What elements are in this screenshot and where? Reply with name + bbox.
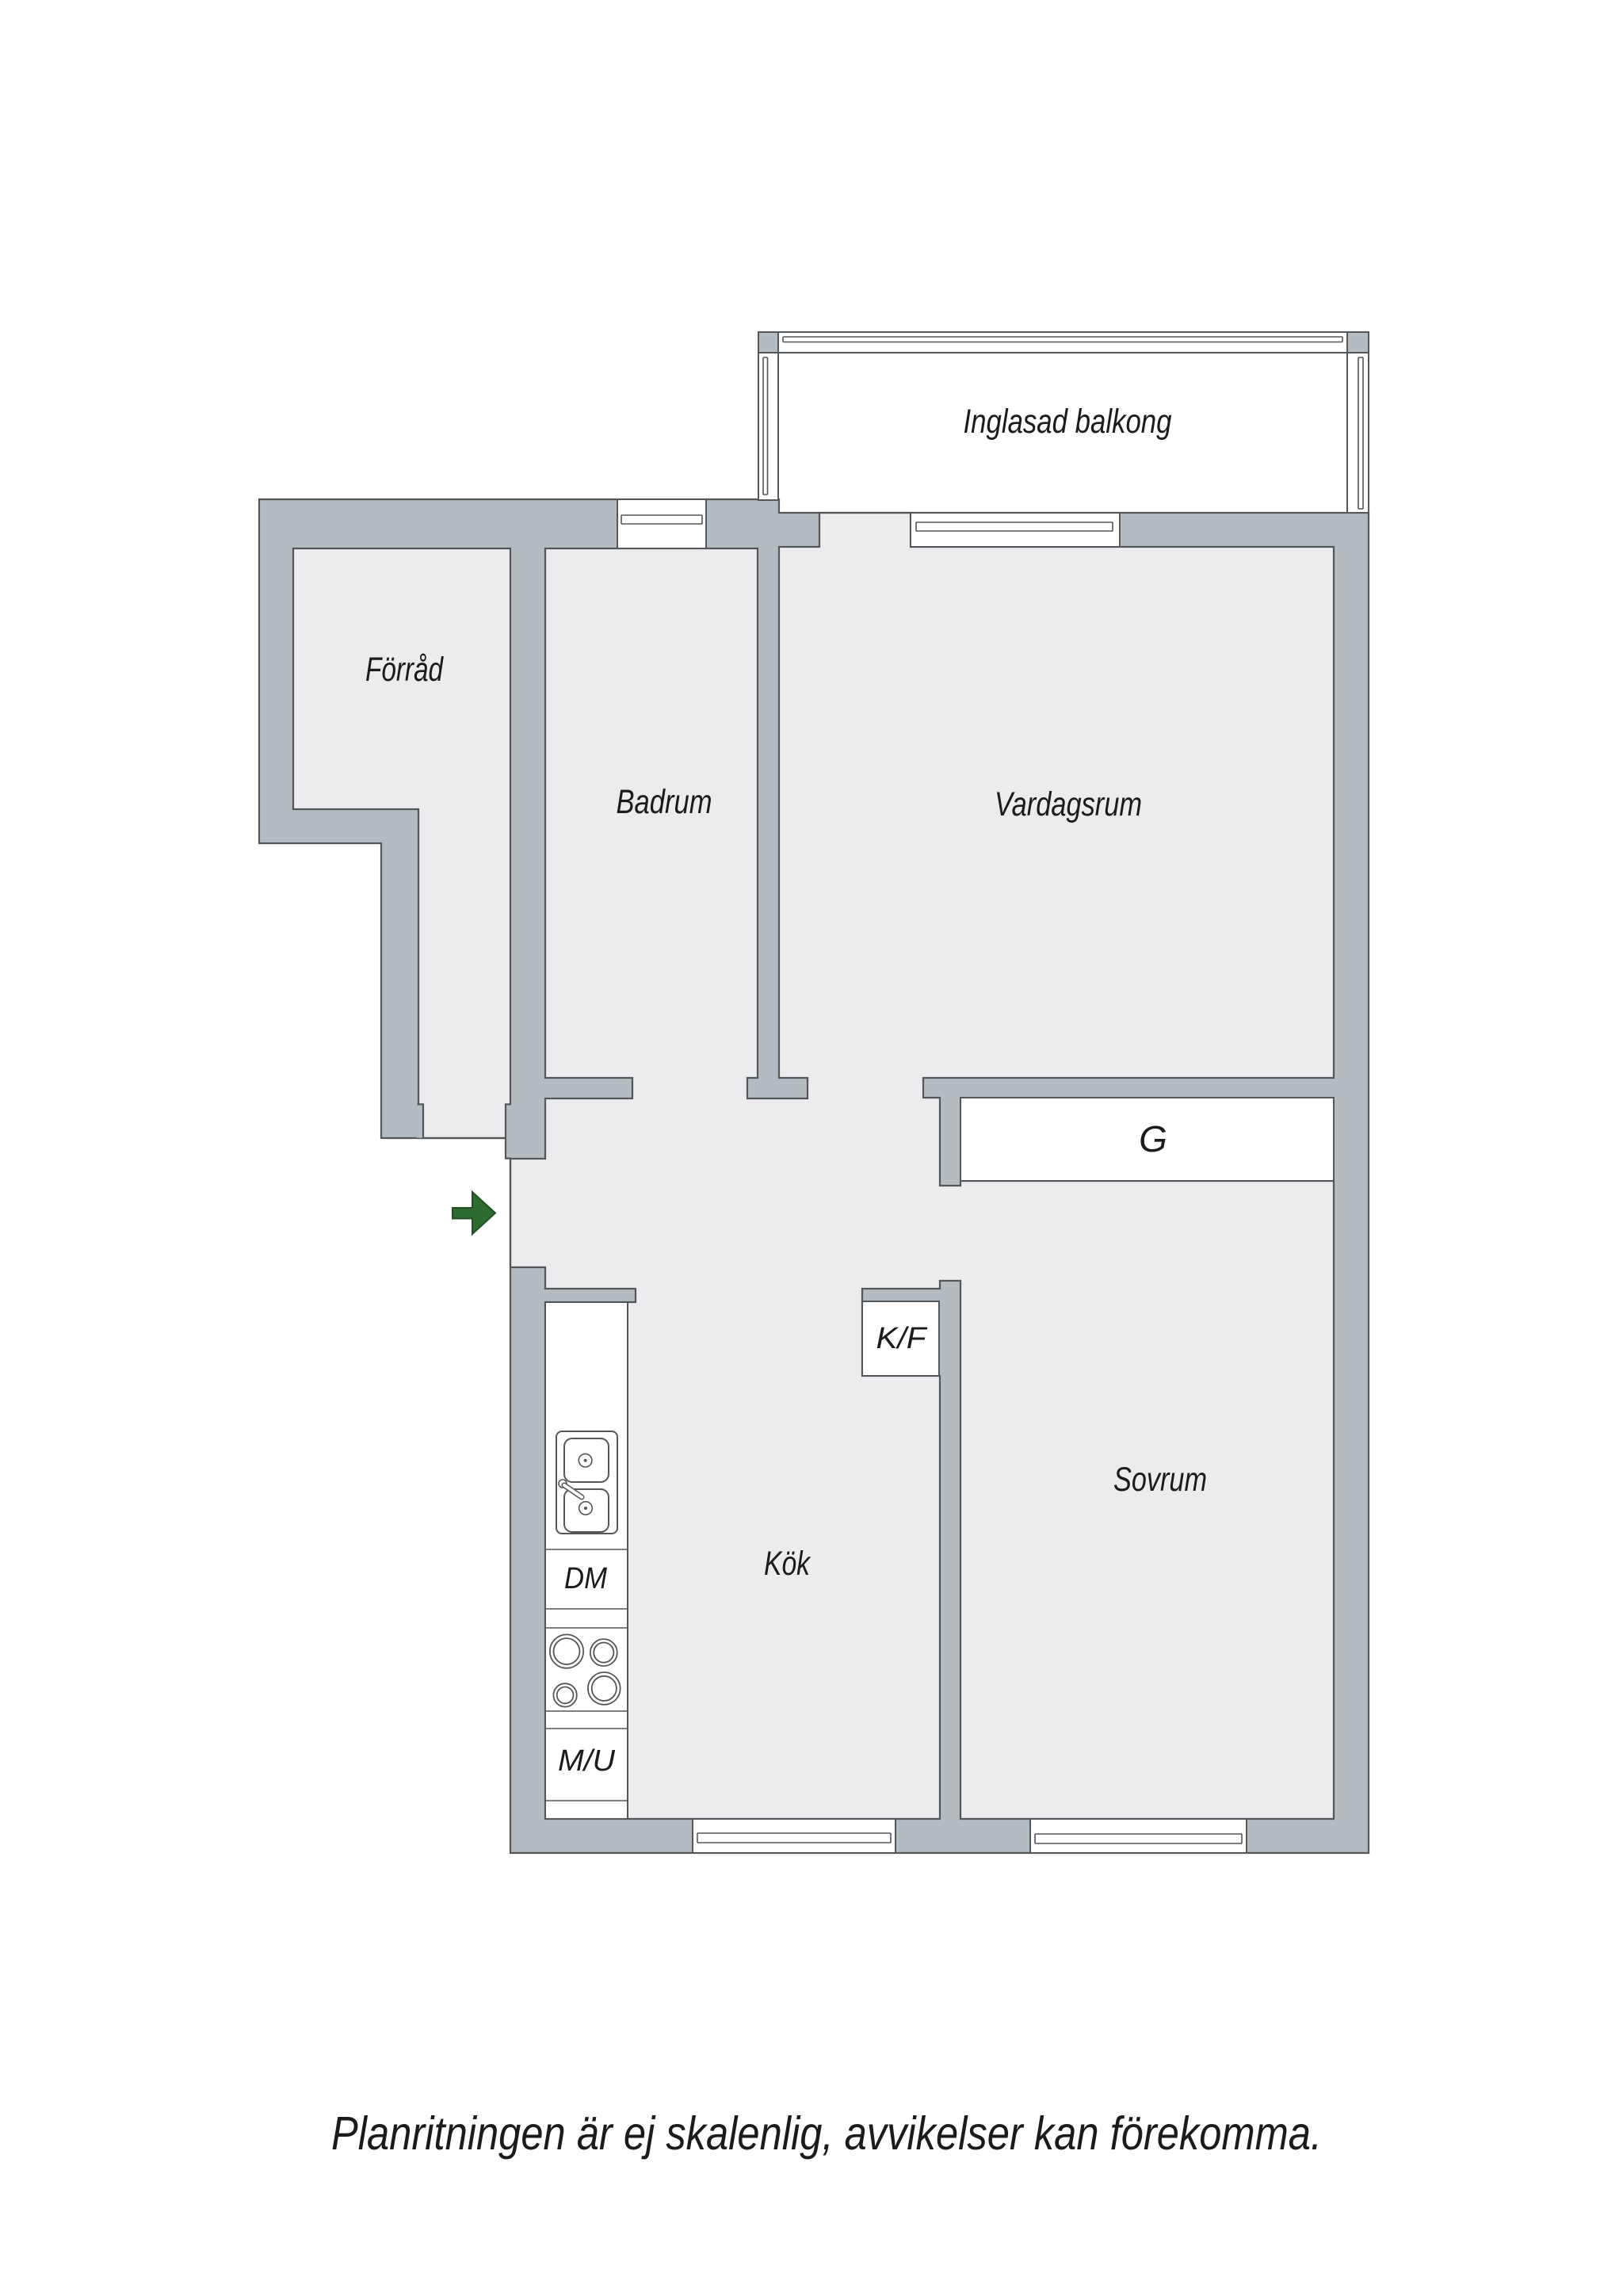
- svg-text:DM: DM: [564, 1562, 607, 1595]
- svg-text:G: G: [1139, 1118, 1167, 1159]
- svg-text:K/F: K/F: [876, 1322, 928, 1355]
- svg-text:Planritningen är ej skalenlig,: Planritningen är ej skalenlig, avvikelse…: [331, 2107, 1322, 2160]
- svg-text:Sovrum: Sovrum: [1113, 1461, 1207, 1499]
- svg-text:Förråd: Förråd: [365, 651, 445, 689]
- svg-text:Inglasad balkong: Inglasad balkong: [964, 403, 1172, 441]
- svg-text:Kök: Kök: [764, 1545, 811, 1583]
- svg-text:M/U: M/U: [558, 1744, 616, 1778]
- svg-text:Badrum: Badrum: [617, 783, 712, 821]
- svg-text:Vardagsrum: Vardagsrum: [995, 785, 1142, 823]
